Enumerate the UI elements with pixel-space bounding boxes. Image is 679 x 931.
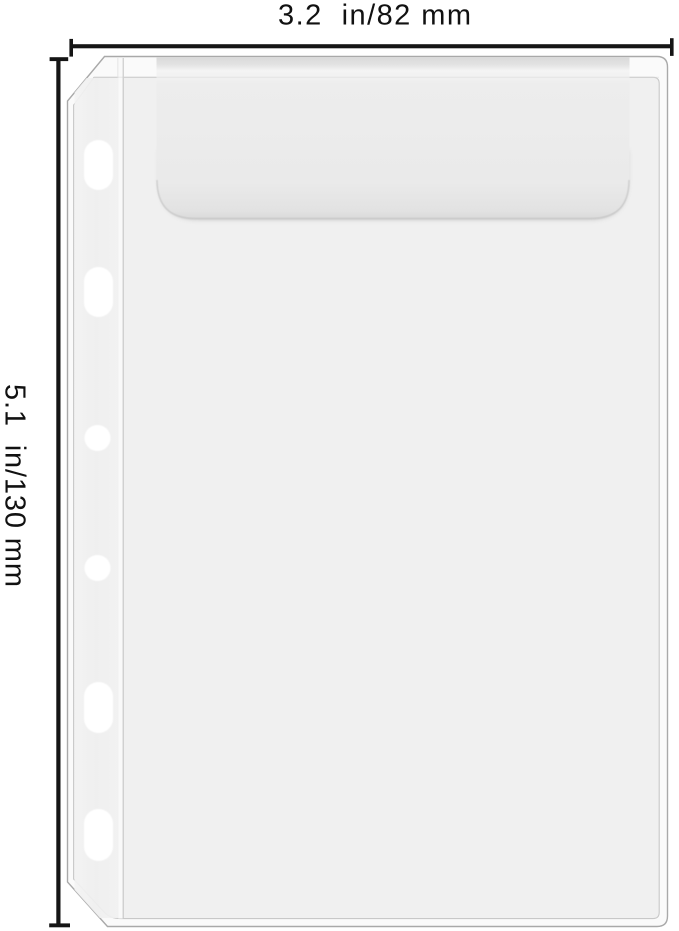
svg-text:5.1 in/130 mm: 5.1 in/130 mm [0, 384, 31, 587]
svg-text:3.2 in/82 mm: 3.2 in/82 mm [278, 0, 471, 32]
